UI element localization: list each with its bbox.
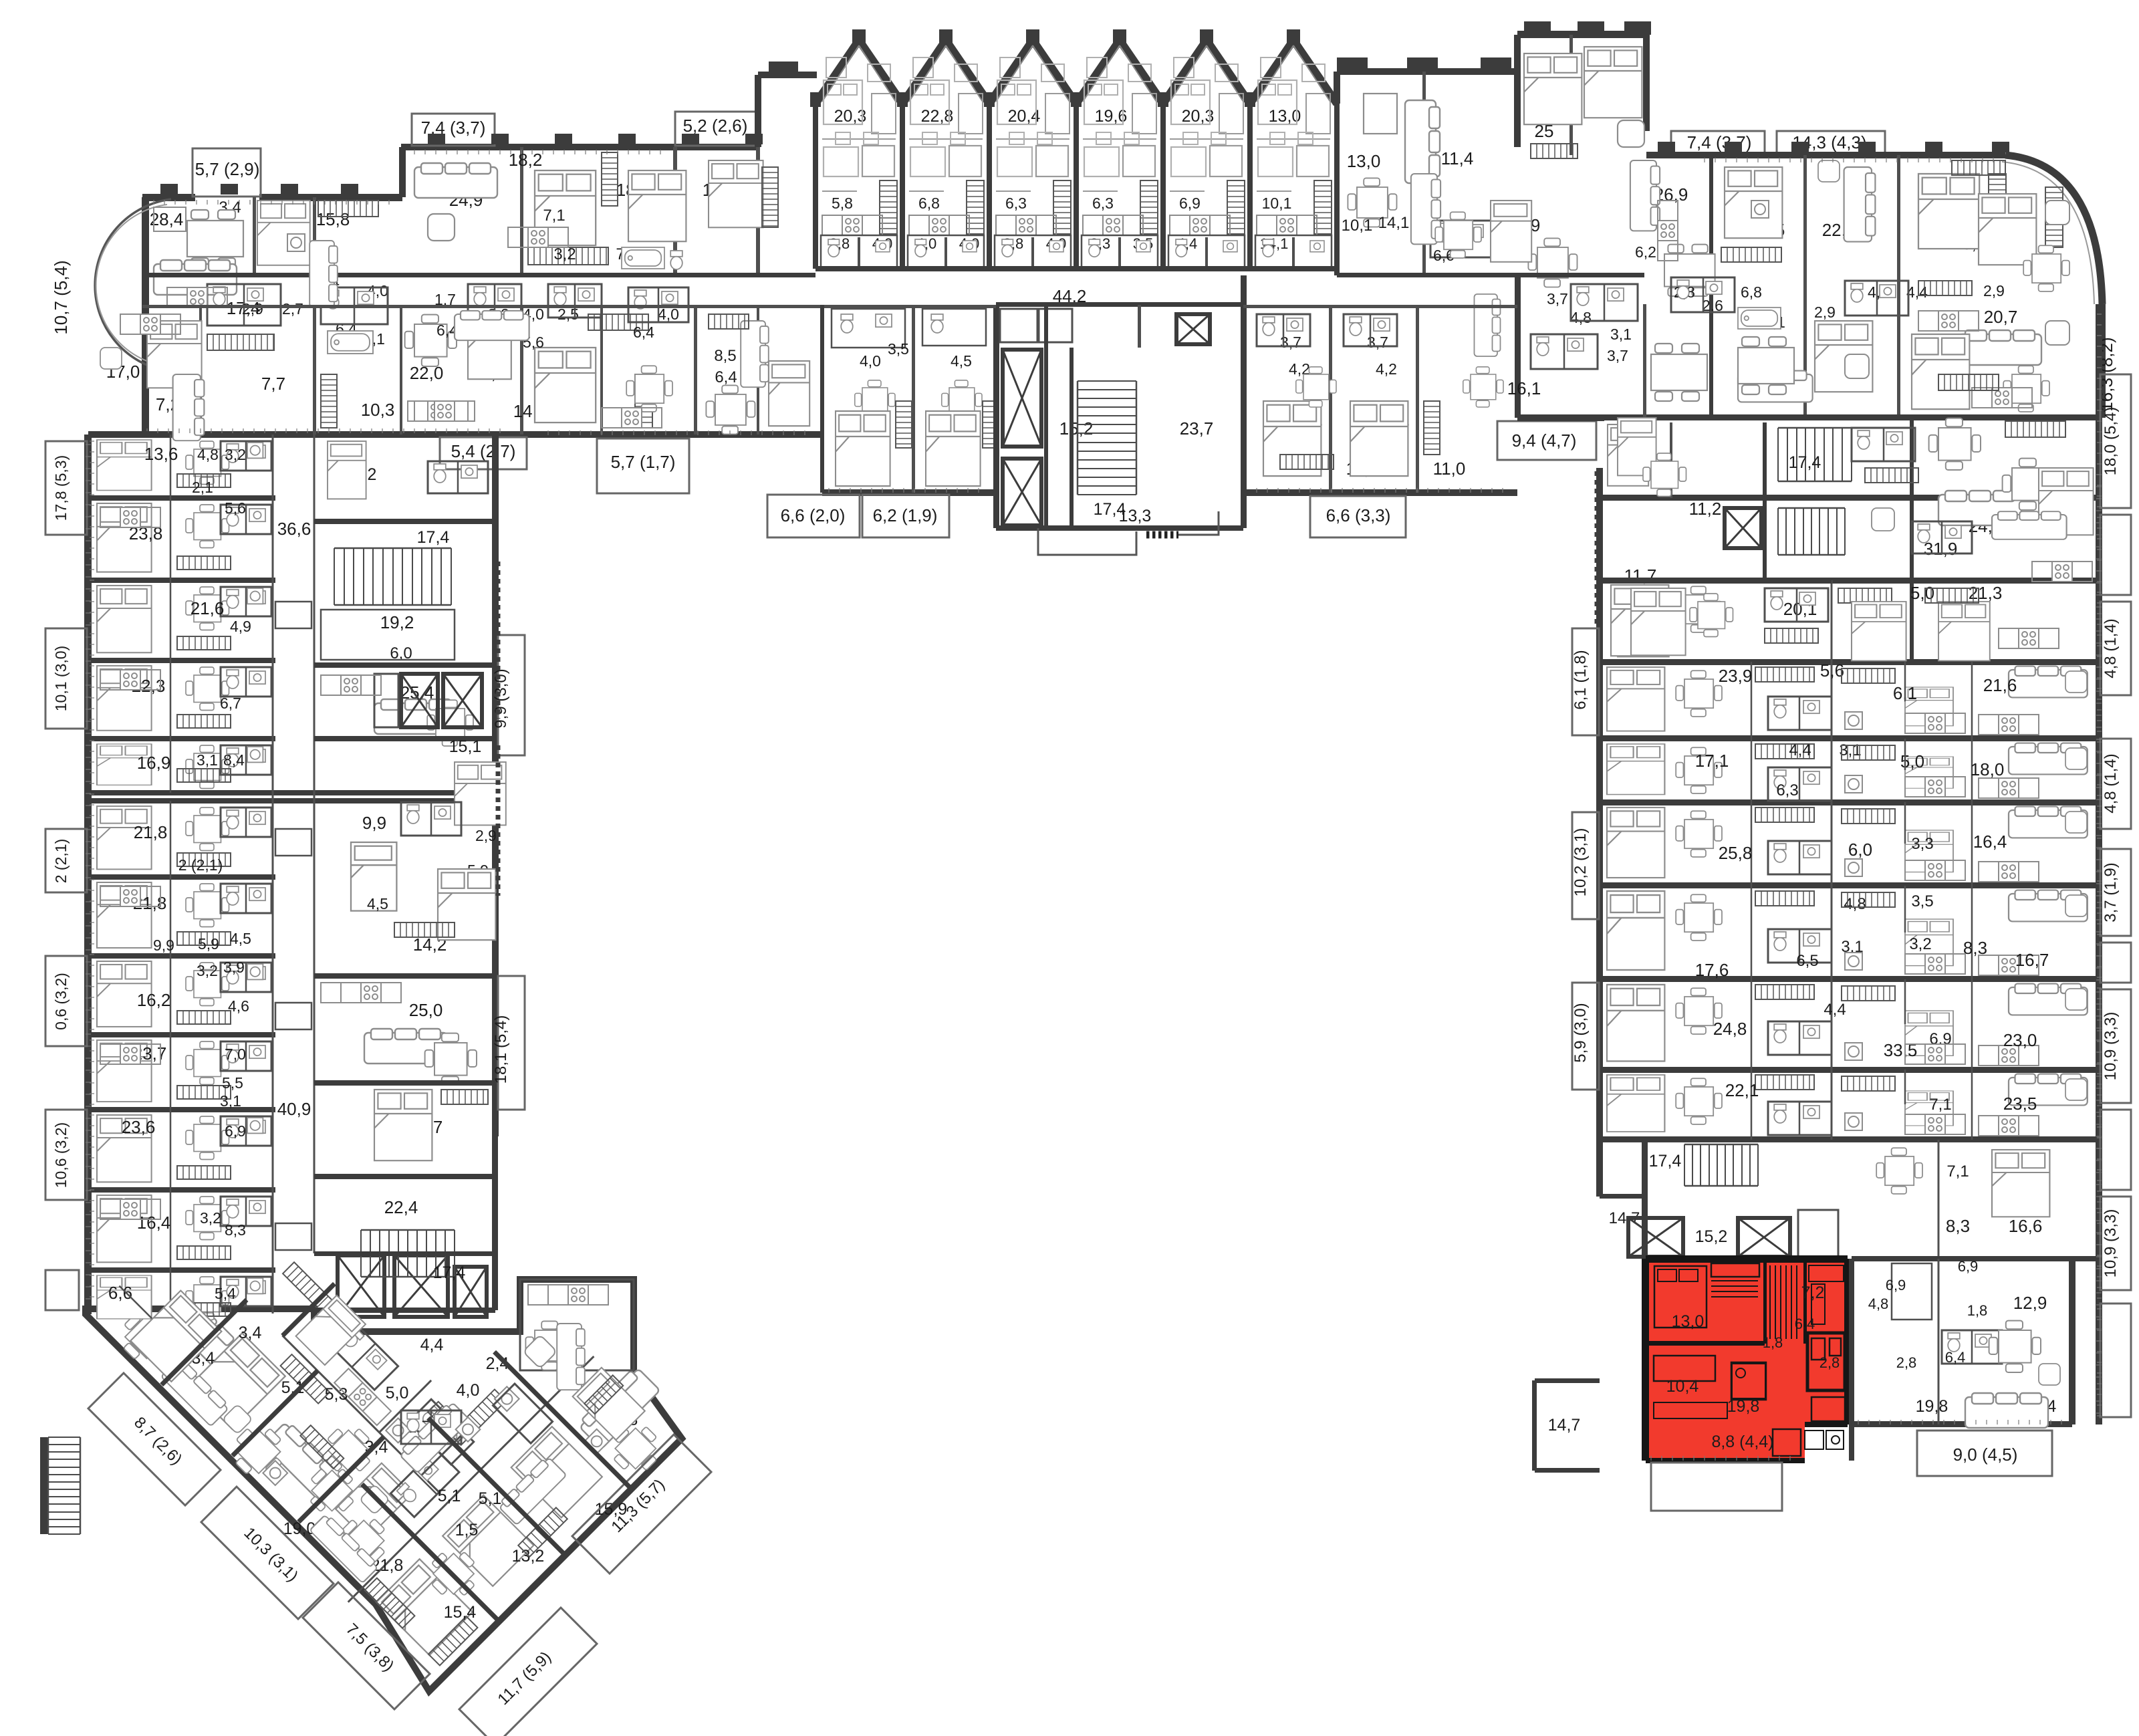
svg-text:28,4: 28,4 — [150, 209, 184, 229]
svg-text:17,4: 17,4 — [433, 1263, 466, 1282]
svg-text:5,0: 5,0 — [1900, 751, 1924, 771]
svg-text:6,1 (1,8): 6,1 (1,8) — [1571, 650, 1590, 709]
svg-text:10,2 (3,1): 10,2 (3,1) — [1571, 828, 1590, 897]
svg-text:8,3: 8,3 — [1963, 938, 1987, 958]
svg-text:4,0: 4,0 — [457, 1381, 480, 1400]
svg-text:1,8: 1,8 — [1967, 1302, 1988, 1319]
svg-text:6,9: 6,9 — [225, 1122, 246, 1140]
svg-text:10,9 (3,3): 10,9 (3,3) — [2102, 1012, 2120, 1081]
svg-text:10,4: 10,4 — [1666, 1377, 1699, 1396]
svg-text:8,3: 8,3 — [225, 1221, 246, 1239]
svg-text:4,4: 4,4 — [1789, 741, 1811, 759]
svg-text:17,4: 17,4 — [1789, 453, 1821, 472]
svg-text:24,8: 24,8 — [1713, 1019, 1747, 1039]
svg-text:21,6: 21,6 — [191, 598, 225, 618]
svg-text:21,8: 21,8 — [134, 822, 168, 842]
svg-text:4,8 (1,4): 4,8 (1,4) — [2102, 753, 2120, 813]
svg-text:8,3: 8,3 — [1946, 1216, 1970, 1236]
svg-text:31,9: 31,9 — [1924, 539, 1958, 559]
svg-text:18,1 (5,4): 18,1 (5,4) — [492, 1015, 510, 1084]
svg-text:3,1: 3,1 — [1610, 326, 1632, 343]
svg-text:5,6: 5,6 — [1820, 660, 1844, 680]
svg-text:4,8: 4,8 — [197, 446, 219, 463]
svg-text:5,6: 5,6 — [225, 499, 246, 517]
svg-text:4,4: 4,4 — [420, 1336, 444, 1354]
svg-text:1,8: 1,8 — [1763, 1334, 1783, 1351]
svg-text:3,2: 3,2 — [200, 1209, 221, 1227]
svg-text:2,7: 2,7 — [282, 300, 303, 318]
svg-text:19,8: 19,8 — [1727, 1397, 1760, 1416]
svg-text:2,9: 2,9 — [1983, 282, 2005, 299]
svg-text:3,2: 3,2 — [225, 446, 246, 463]
svg-text:16,1: 16,1 — [1507, 378, 1541, 398]
svg-text:16,2: 16,2 — [137, 990, 171, 1010]
svg-text:6,4: 6,4 — [715, 368, 737, 386]
svg-text:6,0: 6,0 — [1848, 840, 1872, 860]
svg-text:4,6: 4,6 — [228, 997, 249, 1015]
svg-text:6,9: 6,9 — [1958, 1258, 1979, 1275]
svg-text:9,4 (4,7): 9,4 (4,7) — [1512, 430, 1577, 451]
svg-text:3,5: 3,5 — [1911, 892, 1933, 910]
svg-text:6,2 (1,9): 6,2 (1,9) — [873, 505, 938, 525]
svg-text:3,1: 3,1 — [220, 1092, 241, 1110]
svg-text:5,0: 5,0 — [386, 1384, 409, 1402]
svg-text:9,0 (4,5): 9,0 (4,5) — [1953, 1445, 2018, 1465]
svg-text:16,4: 16,4 — [137, 1213, 171, 1233]
svg-text:6,4: 6,4 — [1945, 1349, 1966, 1366]
svg-text:19,2: 19,2 — [380, 612, 414, 632]
svg-text:6,3: 6,3 — [1005, 195, 1027, 212]
svg-text:21,6: 21,6 — [1983, 675, 2017, 695]
svg-text:2,8: 2,8 — [1896, 1354, 1917, 1371]
svg-text:2,8: 2,8 — [1819, 1354, 1840, 1371]
svg-text:2,9: 2,9 — [242, 300, 263, 318]
svg-text:8,4: 8,4 — [223, 751, 245, 769]
svg-text:36,6: 36,6 — [277, 519, 311, 539]
svg-text:23,7: 23,7 — [1180, 418, 1214, 439]
svg-text:2 (2,1): 2 (2,1) — [178, 856, 223, 874]
svg-text:4,9: 4,9 — [230, 618, 251, 635]
svg-text:5,3: 5,3 — [325, 1385, 348, 1404]
svg-text:16,4: 16,4 — [1973, 832, 2007, 852]
svg-text:3,1: 3,1 — [197, 751, 218, 769]
svg-text:5,8: 5,8 — [832, 195, 853, 212]
svg-text:40,9: 40,9 — [277, 1099, 311, 1119]
svg-text:17,4: 17,4 — [417, 528, 450, 547]
svg-text:23,5: 23,5 — [2003, 1094, 2037, 1114]
svg-text:18,2: 18,2 — [509, 150, 543, 170]
svg-text:17,8 (5,3): 17,8 (5,3) — [52, 455, 70, 521]
svg-text:23,6: 23,6 — [122, 1117, 156, 1137]
svg-text:12,9: 12,9 — [2013, 1293, 2047, 1313]
svg-text:11,4: 11,4 — [1441, 148, 1474, 168]
svg-text:3,2: 3,2 — [553, 245, 576, 263]
svg-text:7,1: 7,1 — [543, 207, 565, 225]
svg-text:15,1: 15,1 — [449, 737, 482, 756]
svg-text:3,5: 3,5 — [888, 340, 909, 358]
svg-text:15,8: 15,8 — [316, 209, 350, 229]
svg-text:17,1: 17,1 — [1695, 751, 1729, 771]
svg-text:3,7: 3,7 — [1547, 290, 1568, 307]
svg-text:4,5: 4,5 — [230, 930, 251, 947]
svg-text:18,0: 18,0 — [1971, 759, 2005, 779]
svg-text:7,2: 7,2 — [1801, 1283, 1825, 1302]
svg-text:13,0: 13,0 — [1347, 151, 1381, 171]
svg-text:16,9: 16,9 — [137, 753, 171, 773]
svg-text:33,5: 33,5 — [1884, 1040, 1918, 1060]
svg-text:0,6 (3,2): 0,6 (3,2) — [52, 973, 70, 1030]
svg-text:3,2: 3,2 — [197, 962, 218, 979]
svg-text:2,1: 2,1 — [192, 479, 213, 496]
svg-text:3,1: 3,1 — [1839, 741, 1861, 759]
svg-text:4,8: 4,8 — [1570, 309, 1592, 326]
svg-text:6,5: 6,5 — [1796, 952, 1818, 970]
svg-text:13,6: 13,6 — [144, 444, 178, 464]
svg-text:16,6: 16,6 — [2009, 1216, 2043, 1236]
svg-text:4,8 (1,4): 4,8 (1,4) — [2102, 618, 2120, 678]
svg-text:18,0 (5,4): 18,0 (5,4) — [2102, 407, 2120, 476]
svg-text:23,9: 23,9 — [1719, 666, 1753, 686]
svg-text:13,0: 13,0 — [1672, 1312, 1705, 1331]
svg-text:5,1: 5,1 — [438, 1487, 461, 1505]
svg-text:17,4: 17,4 — [1649, 1152, 1682, 1170]
svg-text:4,4: 4,4 — [1823, 1001, 1846, 1019]
svg-text:4,5: 4,5 — [367, 895, 388, 912]
svg-text:6,6 (2,0): 6,6 (2,0) — [781, 505, 846, 525]
svg-text:9,9: 9,9 — [153, 937, 174, 954]
svg-text:9,9 (3,0): 9,9 (3,0) — [492, 668, 510, 728]
svg-text:22,1: 22,1 — [1725, 1080, 1759, 1100]
svg-text:23,0: 23,0 — [2003, 1030, 2037, 1050]
svg-text:5,9: 5,9 — [198, 935, 219, 953]
svg-text:3,2: 3,2 — [1909, 935, 1931, 953]
svg-text:14,7: 14,7 — [1548, 1416, 1581, 1435]
svg-text:25,8: 25,8 — [1719, 843, 1753, 863]
svg-text:13,3: 13,3 — [1119, 507, 1152, 525]
svg-text:4,8: 4,8 — [1868, 1295, 1889, 1312]
svg-text:5,5: 5,5 — [222, 1074, 243, 1092]
svg-text:2 (2,1): 2 (2,1) — [52, 839, 70, 883]
svg-text:5,2 (2,6): 5,2 (2,6) — [683, 116, 748, 136]
svg-text:6,8: 6,8 — [918, 195, 940, 212]
svg-text:3,3: 3,3 — [1911, 835, 1933, 853]
svg-text:6,9: 6,9 — [1179, 195, 1201, 212]
svg-text:4,5: 4,5 — [951, 352, 972, 370]
svg-text:2,9: 2,9 — [1814, 303, 1836, 321]
svg-text:9,9: 9,9 — [362, 813, 386, 833]
svg-text:8,5: 8,5 — [714, 347, 736, 365]
svg-text:5,4 (2,7): 5,4 (2,7) — [451, 441, 516, 461]
svg-text:5,7 (1,7): 5,7 (1,7) — [611, 452, 676, 472]
svg-text:8,8 (4,4): 8,8 (4,4) — [1711, 1433, 1773, 1451]
svg-text:10,9 (3,3): 10,9 (3,3) — [2102, 1209, 2120, 1278]
svg-text:22,4: 22,4 — [384, 1197, 418, 1217]
svg-text:14,1: 14,1 — [1378, 214, 1410, 232]
svg-text:16,7: 16,7 — [2015, 950, 2049, 970]
svg-text:10,1 (3,0): 10,1 (3,0) — [52, 646, 70, 711]
svg-text:3,4: 3,4 — [239, 1324, 262, 1342]
svg-text:5,9 (3,0): 5,9 (3,0) — [1571, 1003, 1590, 1062]
svg-text:3,9: 3,9 — [223, 959, 245, 976]
svg-text:17,6: 17,6 — [1695, 960, 1729, 980]
svg-text:7,0: 7,0 — [225, 1045, 246, 1063]
svg-text:5,4: 5,4 — [215, 1285, 236, 1302]
svg-text:7,7: 7,7 — [261, 374, 285, 394]
svg-text:6,2: 6,2 — [1635, 243, 1656, 261]
svg-text:4,2: 4,2 — [1376, 360, 1397, 378]
svg-text:15,2: 15,2 — [1695, 1227, 1728, 1246]
svg-text:15,4: 15,4 — [444, 1603, 477, 1622]
svg-text:3,7: 3,7 — [1607, 347, 1628, 364]
svg-text:6,7: 6,7 — [220, 695, 241, 712]
svg-text:5,7 (2,9): 5,7 (2,9) — [195, 159, 260, 179]
svg-text:7,1: 7,1 — [1929, 1096, 1951, 1114]
svg-text:4,0: 4,0 — [860, 352, 881, 370]
svg-text:10,6 (3,2): 10,6 (3,2) — [52, 1122, 70, 1188]
svg-text:6,3: 6,3 — [1092, 195, 1114, 212]
svg-text:10,3: 10,3 — [361, 400, 395, 420]
svg-text:11,2: 11,2 — [1689, 499, 1722, 519]
svg-text:5,1: 5,1 — [479, 1489, 502, 1508]
svg-text:1,5: 1,5 — [455, 1521, 479, 1539]
svg-text:20,7: 20,7 — [1984, 307, 2018, 327]
svg-text:25,0: 25,0 — [409, 1000, 443, 1020]
svg-text:7,1: 7,1 — [1946, 1162, 1969, 1181]
svg-text:6,4: 6,4 — [633, 324, 654, 341]
svg-text:2,9: 2,9 — [475, 827, 497, 844]
svg-text:6,8: 6,8 — [1741, 283, 1762, 301]
svg-text:15,2: 15,2 — [1059, 418, 1094, 439]
svg-text:6,9: 6,9 — [1886, 1277, 1906, 1293]
svg-text:3,7 (1,9): 3,7 (1,9) — [2102, 862, 2120, 922]
svg-text:10,7 (5,4): 10,7 (5,4) — [51, 260, 71, 334]
svg-text:19,8: 19,8 — [1916, 1397, 1948, 1416]
svg-text:6,3: 6,3 — [1776, 781, 1798, 799]
svg-text:10,1: 10,1 — [1342, 217, 1373, 235]
svg-text:10,1: 10,1 — [1262, 195, 1292, 212]
svg-text:6,6 (3,3): 6,6 (3,3) — [1326, 505, 1391, 525]
svg-text:11,0: 11,0 — [1433, 459, 1466, 479]
